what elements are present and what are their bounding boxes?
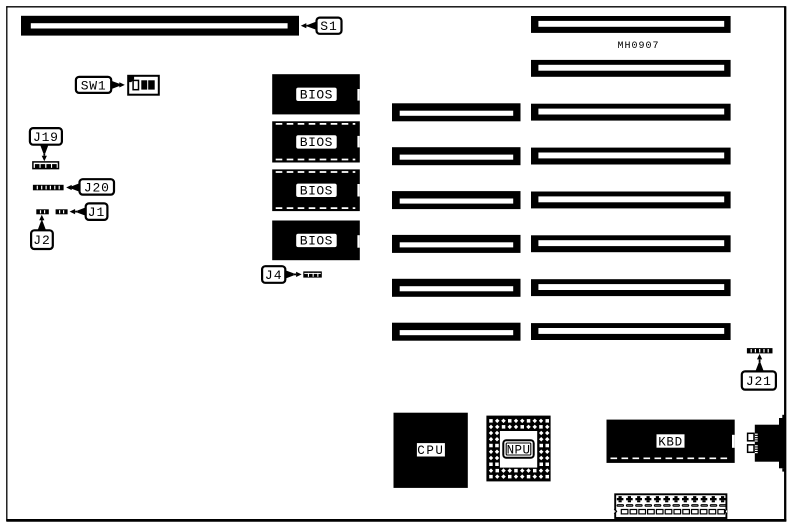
- svg-text:BIOS: BIOS: [300, 88, 333, 103]
- svg-text:MH0907: MH0907: [617, 41, 659, 52]
- svg-text:BIOS: BIOS: [300, 184, 333, 199]
- svg-text:J4: J4: [265, 268, 283, 283]
- svg-text:J21: J21: [746, 374, 772, 389]
- svg-text:J2: J2: [33, 233, 51, 248]
- svg-text:KBD: KBD: [658, 435, 683, 449]
- svg-text:J20: J20: [84, 180, 110, 195]
- svg-text:SW1: SW1: [81, 78, 107, 93]
- svg-text:J1: J1: [88, 205, 106, 220]
- svg-text:CPU: CPU: [417, 444, 444, 458]
- svg-text:J19: J19: [33, 130, 59, 145]
- svg-text:NPU: NPU: [507, 443, 531, 457]
- svg-text:S1: S1: [320, 19, 338, 34]
- svg-text:BIOS: BIOS: [300, 135, 333, 150]
- svg-text:BIOS: BIOS: [300, 234, 333, 249]
